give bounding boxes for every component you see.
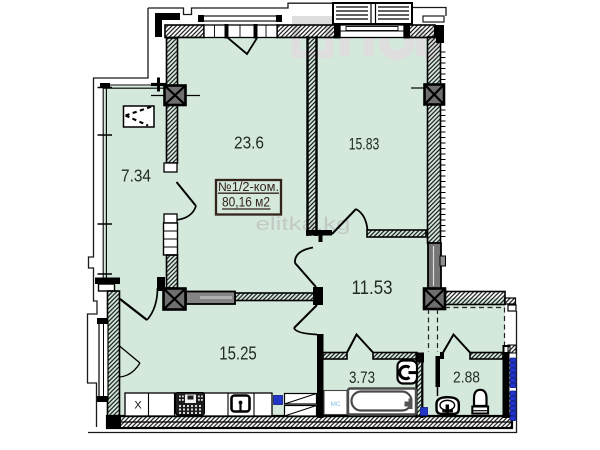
svg-text:15.25: 15.25 — [219, 343, 257, 364]
svg-text:11.53: 11.53 — [352, 278, 393, 299]
svg-text:7.34: 7.34 — [121, 166, 151, 186]
svg-text:X: X — [134, 400, 142, 412]
svg-text:15.83: 15.83 — [349, 136, 380, 154]
svg-text:№1/2-ком.: №1/2-ком. — [218, 180, 279, 194]
svg-text:3.73: 3.73 — [349, 369, 375, 387]
svg-text:80,16 м2: 80,16 м2 — [222, 195, 270, 210]
svg-text:2.88: 2.88 — [453, 370, 480, 387]
svg-text:МС: МС — [330, 401, 340, 408]
svg-text:23.6: 23.6 — [234, 133, 264, 153]
